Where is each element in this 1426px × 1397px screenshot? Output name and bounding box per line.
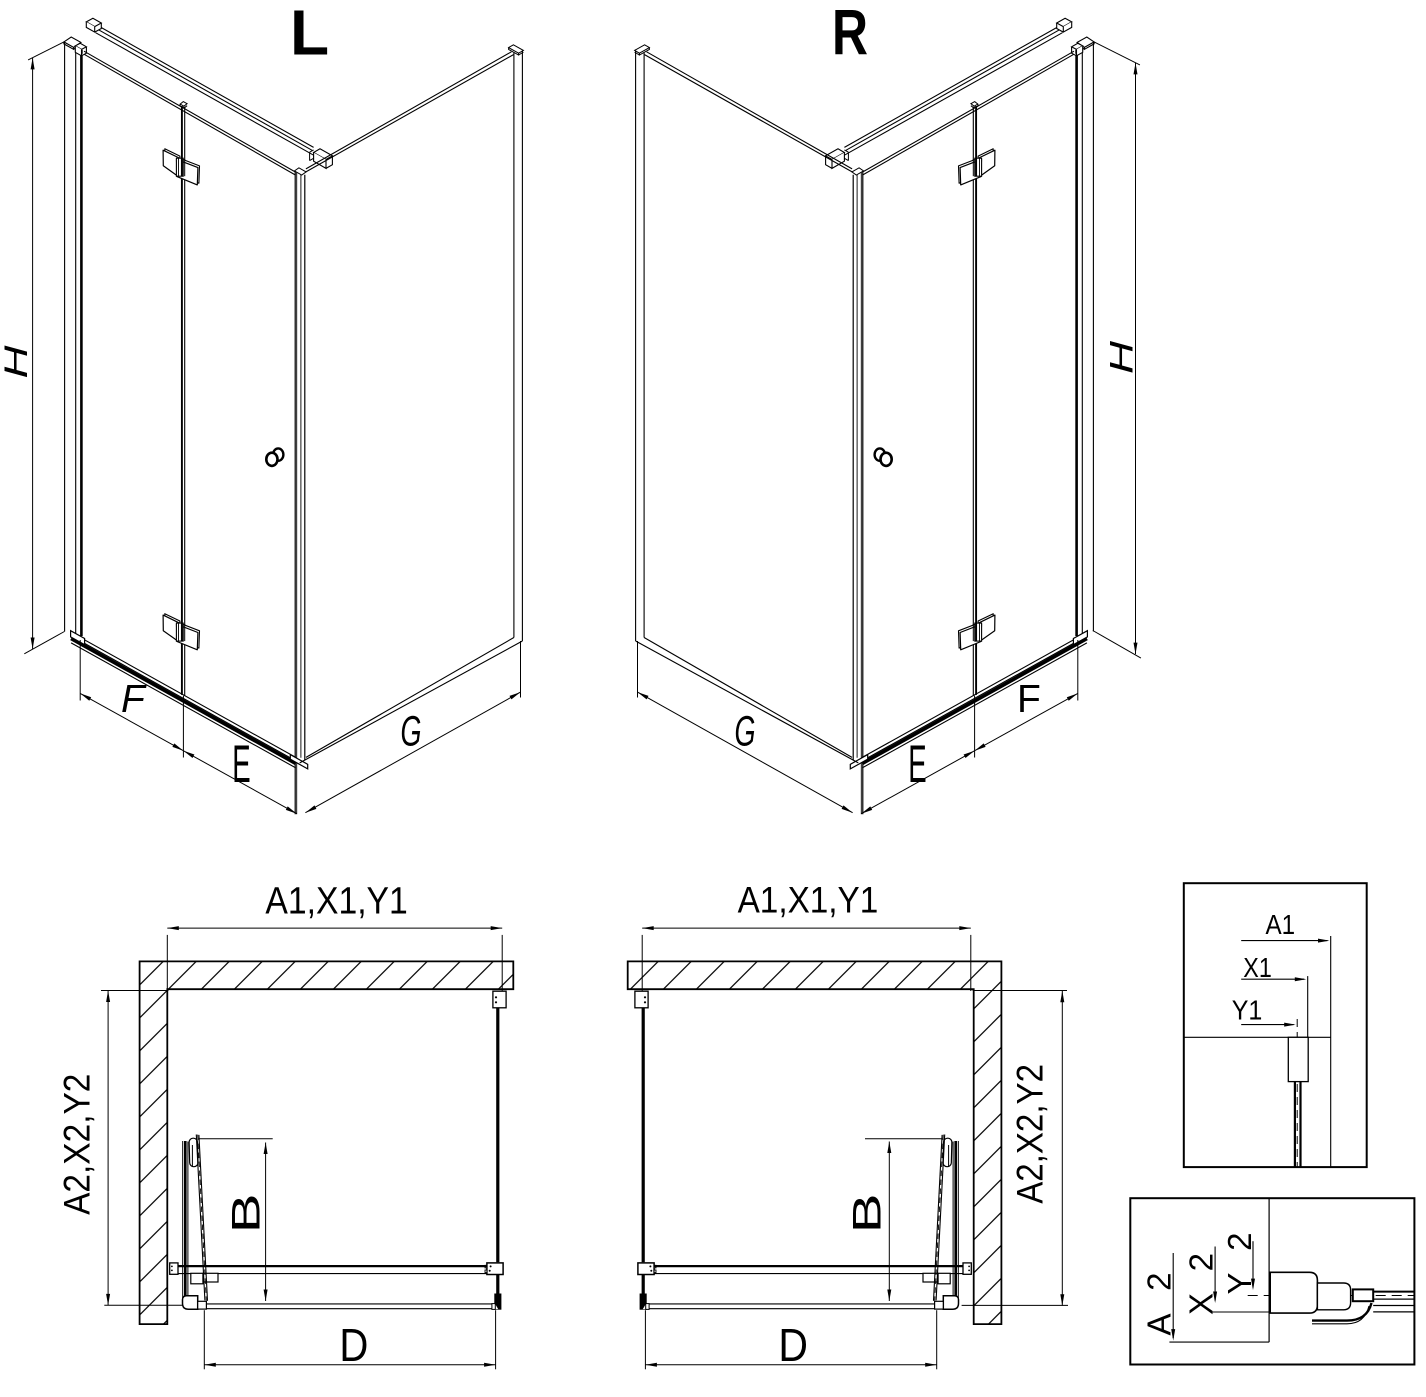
svg-text:X1: X1 [1243,952,1272,983]
svg-text:E: E [908,735,926,794]
svg-text:A1,X1,Y1: A1,X1,Y1 [738,880,879,921]
svg-text:E: E [232,735,250,794]
svg-text:A2,X2,Y2: A2,X2,Y2 [57,1074,98,1215]
svg-text:Y1: Y1 [1232,994,1263,1025]
svg-text:H: H [0,344,34,378]
svg-text:G: G [401,708,422,756]
svg-text:A1: A1 [1266,909,1296,940]
svg-text:A2,X2,Y2: A2,X2,Y2 [1010,1064,1051,1204]
svg-text:B: B [224,1193,268,1233]
svg-text:L: L [290,0,329,69]
svg-text:G: G [735,708,756,756]
svg-text:D: D [778,1319,808,1371]
svg-text:D: D [339,1319,368,1371]
svg-text:H: H [1104,340,1140,374]
svg-text:A1,X1,Y1: A1,X1,Y1 [265,881,407,923]
svg-text:F: F [1017,678,1041,721]
svg-text:B: B [845,1193,889,1233]
svg-text:R: R [832,0,868,69]
svg-text:F: F [121,678,147,721]
